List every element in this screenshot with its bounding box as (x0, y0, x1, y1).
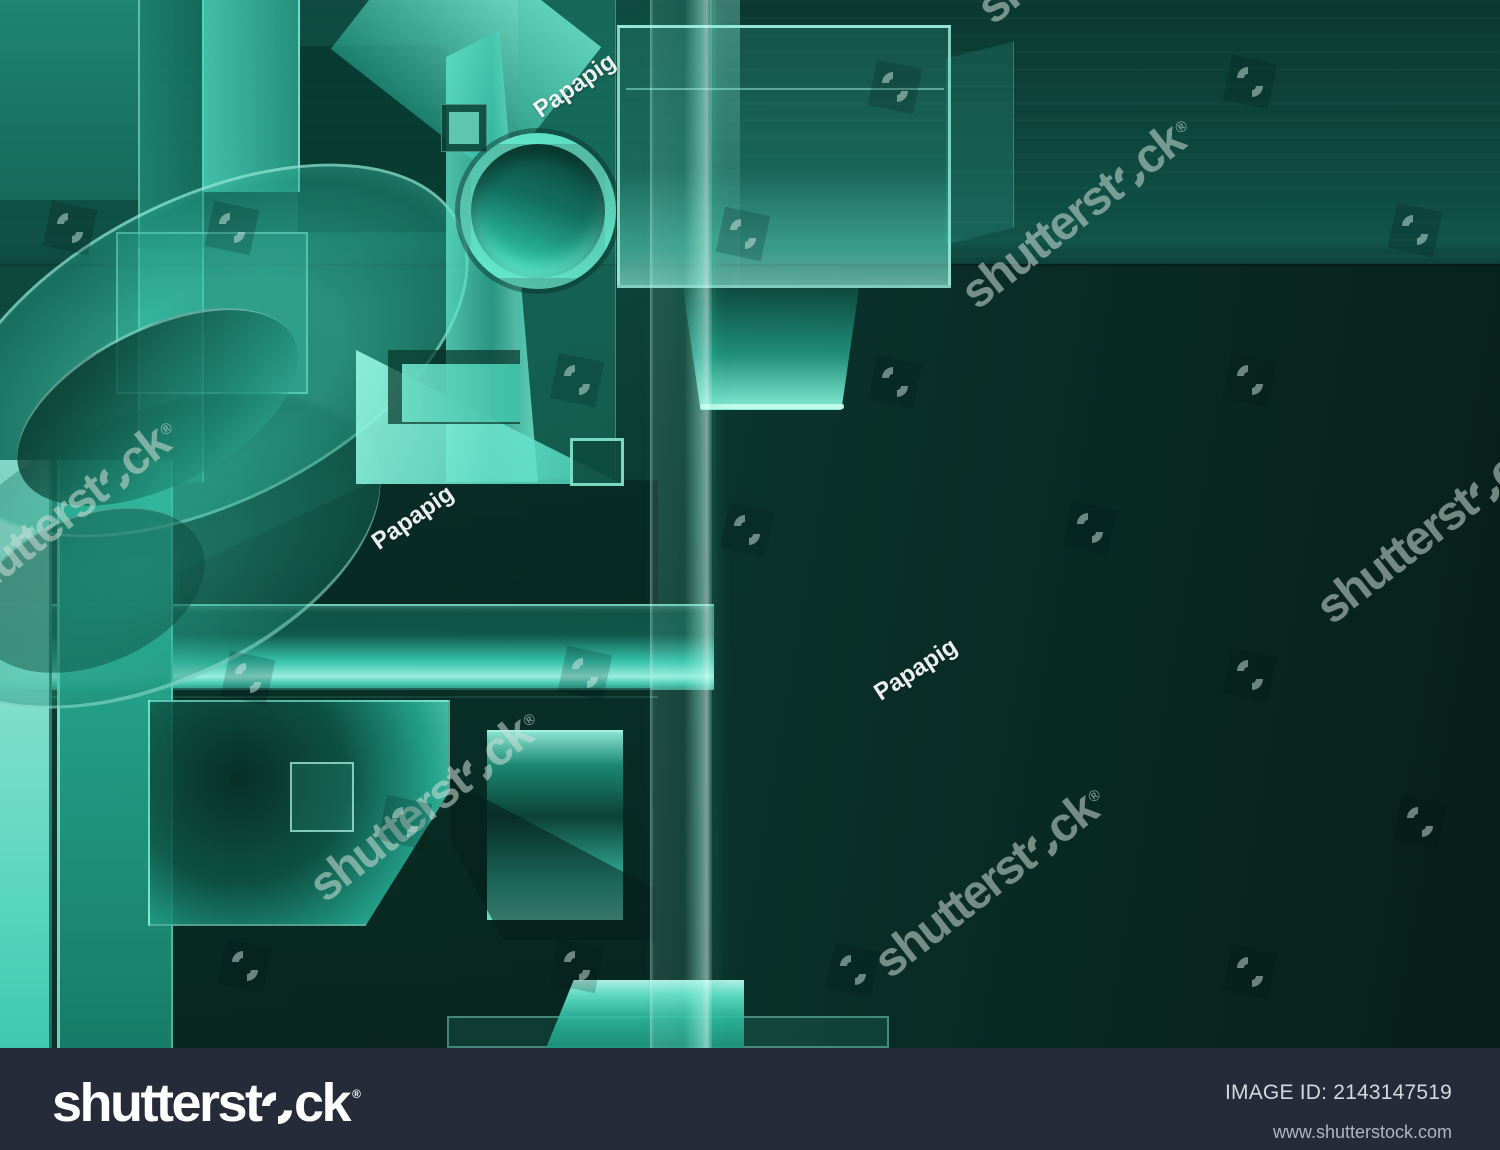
shutterstock-watermark-text: shutterstck® (951, 106, 1204, 320)
shutterstock-watermark-icon (872, 64, 918, 110)
shutterstock-watermark-icon (222, 943, 268, 989)
artist-watermark: Papapig (869, 633, 963, 707)
shutterstock-watermark-icon (554, 357, 600, 403)
shutterstock-watermark-icon (1397, 799, 1443, 845)
shutterstock-watermark-icon (1227, 652, 1273, 698)
image-id: IMAGE ID: 2143147519 (1225, 1081, 1452, 1105)
shutterstock-watermark-icon (1227, 949, 1273, 995)
shutterstock-watermark-icon (209, 205, 255, 251)
shutterstock-watermark-icon (720, 211, 766, 257)
shutterstock-watermark-text: shutterstck® (864, 775, 1117, 989)
logo-text-suffix: ck (294, 1073, 349, 1133)
registered-mark: ® (352, 1087, 358, 1101)
shutterstock-watermark-icon (872, 359, 918, 405)
shutterstock-watermark-icon (1392, 207, 1438, 253)
shutterstock-watermark-icon (382, 799, 428, 845)
shutterstock-logo: shutterstck® (52, 1072, 358, 1134)
image-id-value: 2143147519 (1333, 1081, 1452, 1104)
shutterstock-watermark-icon (830, 947, 876, 993)
watermark-layer: shutterstck®shutterstck®shutterstck®shut… (0, 0, 1500, 1048)
shutterstock-o-icon (262, 1092, 292, 1124)
shutterstock-watermark-text: shutterstck® (967, 0, 1220, 35)
logo-text-prefix: shutterst (52, 1073, 261, 1133)
artist-watermark: Papapig (529, 48, 622, 124)
shutterstock-watermark-text: shutterstck® (0, 408, 188, 622)
shutterstock-watermark-icon (47, 205, 93, 251)
shutterstock-watermark-icon (562, 650, 608, 696)
stock-photo-preview: shutterstck®shutterstck®shutterstck®shut… (0, 0, 1500, 1150)
shutterstock-watermark-icon (1227, 59, 1273, 105)
footer-bar: shutterstck® IMAGE ID: 2143147519 www.sh… (0, 1048, 1500, 1150)
shutterstock-watermark-icon (1067, 505, 1113, 551)
footer-meta: IMAGE ID: 2143147519 www.shutterstock.co… (1225, 1081, 1452, 1143)
shutterstock-watermark-icon (225, 655, 271, 701)
shutterstock-watermark-icon (1227, 357, 1273, 403)
artwork-abstract-3d-green: shutterstck®shutterstck®shutterstck®shut… (0, 0, 1500, 1048)
shutterstock-watermark-text: shutterstck® (1306, 421, 1500, 635)
site-url: www.shutterstock.com (1225, 1122, 1452, 1143)
artist-watermark: Papapig (367, 480, 460, 556)
shutterstock-watermark-icon (724, 507, 770, 553)
shutterstock-watermark-icon (554, 943, 600, 989)
